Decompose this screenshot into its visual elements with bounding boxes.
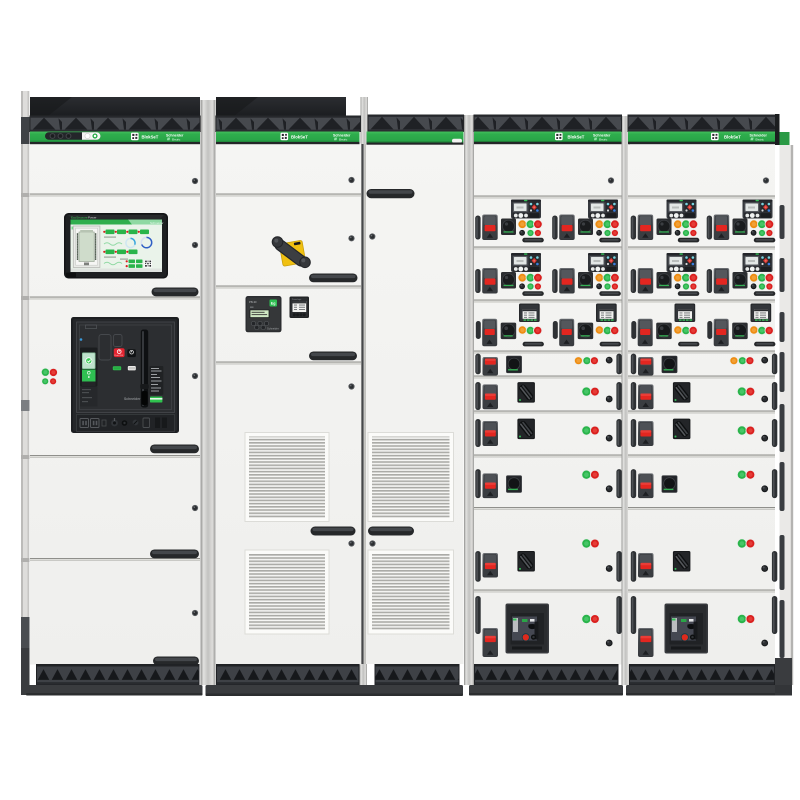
svg-text:PowerLogic: PowerLogic: [292, 299, 301, 301]
svg-text:Power: Power: [88, 215, 97, 219]
svg-text:Electric: Electric: [172, 139, 181, 142]
svg-text:Schneider: Schneider: [166, 134, 184, 138]
svg-text:Schneider: Schneider: [333, 134, 351, 138]
svg-text:BlokSeT: BlokSeT: [142, 134, 159, 139]
svg-text:BlokSeT: BlokSeT: [568, 134, 585, 139]
svg-text:Schneider: Schneider: [750, 134, 768, 138]
svg-text:Electric: Electric: [339, 139, 348, 142]
svg-text:P5L30: P5L30: [249, 300, 257, 304]
svg-text:Eg: Eg: [271, 302, 276, 306]
svg-text:Electric: Electric: [599, 139, 608, 142]
svg-text:Electric: Electric: [756, 139, 765, 142]
svg-text:Schneider: Schneider: [593, 134, 611, 138]
svg-text:Schneider: Schneider: [267, 327, 279, 331]
svg-text:BlokSeT: BlokSeT: [724, 134, 741, 139]
svg-text:Push OFF: Push OFF: [115, 355, 124, 357]
svg-text:EcoStruxure: EcoStruxure: [71, 215, 88, 219]
svg-text:BlokSeT: BlokSeT: [291, 134, 308, 139]
svg-text:Schneider: Schneider: [124, 397, 141, 401]
svg-text:Schneider: Schneider: [150, 221, 164, 225]
